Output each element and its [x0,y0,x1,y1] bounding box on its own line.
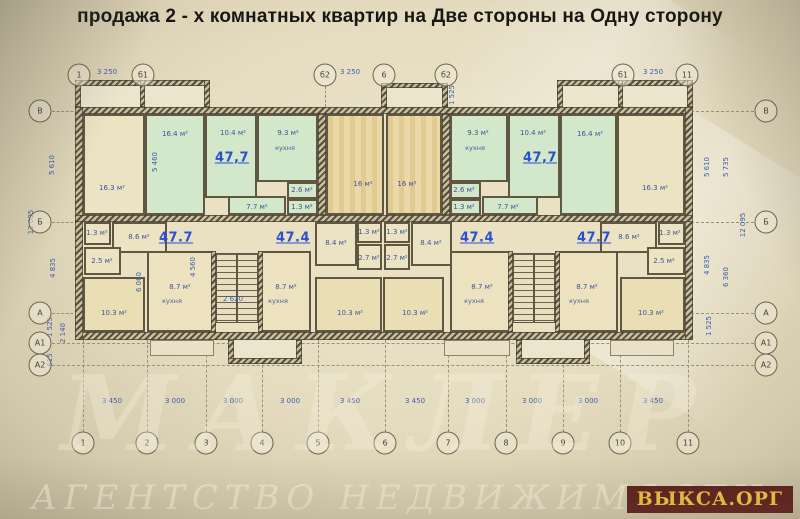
wall [555,251,560,332]
axis-circle: Б [755,211,778,234]
axis-line-vertical [325,86,326,107]
dimension-label: 5 610 [48,155,56,175]
wall [211,251,216,332]
dimension-label: 2 620 [223,295,243,303]
axis-circle: А1 [755,332,778,355]
dimension-label: 4 560 [189,257,197,277]
room [315,277,382,332]
dimension-label: 5 735 [722,157,730,177]
room-kitchen-label: кухня [162,297,182,305]
room-area-label: 2.5 м² [91,257,112,265]
axis-circle: 1 [68,64,91,87]
wall [508,251,513,332]
site-badge: ВЫКСА.ОРГ [627,486,793,513]
room-kitchen-label: кухня [569,297,589,305]
axis-circle: Б [29,211,52,234]
room-area-label: 10.3 м² [337,309,363,317]
axis-line-horizontal [691,313,754,314]
room-area-label: 8.7 м² [169,283,190,291]
room-area-label: 8.7 м² [275,283,296,291]
dimension-label: 5 460 [151,152,159,172]
apartment-area-label: 47.4 [276,231,310,246]
axis-line-horizontal [691,111,754,112]
room-area-label: 16.4 м² [162,130,188,138]
room-area-label: 9.3 м² [467,129,488,137]
dimension-label: 3 250 [643,68,663,76]
room [386,114,442,215]
room-area-label: 16.4 м² [577,130,603,138]
dimension-label: 1 525 [448,85,456,105]
room [558,251,618,332]
building-protrusion [563,86,687,107]
room-area-label: 16 м² [353,180,372,188]
room-area-label: 1.3 м² [291,203,312,211]
wall [75,332,693,340]
axis-circle: В [29,100,52,123]
room-area-label: 7.7 м² [497,203,518,211]
room-area-label: 16.3 м² [99,184,125,192]
room-area-label: 2.7 м² [386,254,407,262]
room-area-label: 8.4 м² [325,239,346,247]
room [620,277,685,332]
wall [258,251,263,332]
axis-circle: А2 [29,354,52,377]
room [450,251,512,332]
room-area-label: 9.3 м² [277,129,298,137]
apartment-area-label: 47,7 [523,151,557,166]
axis-circle: А1 [29,332,52,355]
room-area-label: 10.3 м² [638,309,664,317]
room-area-label: 10.4 м² [520,129,546,137]
dimension-label: 5 610 [703,157,711,177]
room [261,251,311,332]
room-area-label: 1.3 м² [659,229,680,237]
wall [685,107,693,340]
room-area-label: 1.3 м² [86,229,107,237]
room-area-label: 2.6 м² [453,186,474,194]
axis-circle: А [29,302,52,325]
axis-circle: б1 [132,64,155,87]
dimension-label: 2 140 [59,323,67,343]
dimension-label: 12 095 [739,213,747,238]
room-area-label: 16 м² [397,180,416,188]
room-area-label: 8.7 м² [471,283,492,291]
wall [442,114,450,215]
floor-plan-photo: продажа 2 - х комнатных квартир на Две с… [0,0,800,519]
room-area-label: 8.4 м² [420,239,441,247]
dimension-label: 3 250 [97,68,117,76]
apartment-area-label: 47.7 [159,231,193,246]
dimension-label: 3 250 [340,68,360,76]
room [147,251,215,332]
dimension-label: 6 360 [722,267,730,287]
room-kitchen-label: кухня [268,297,288,305]
axis-circle: б1 [612,64,635,87]
room-area-label: 16.3 м² [642,184,668,192]
room-area-label: 2.6 м² [291,186,312,194]
room-area-label: 10.3 м² [402,309,428,317]
room-area-label: 1.3 м² [386,228,407,236]
apartment-area-label: 47.4 [460,231,494,246]
dimension-label: 1 525 [705,316,713,336]
dimension-label: 6 060 [135,272,143,292]
axis-circle: 11 [676,64,699,87]
apartment-area-label: 47,7 [215,151,249,166]
room-area-label: 8.6 м² [618,233,639,241]
room-area-label: 1.3 м² [358,228,379,236]
wall [75,107,83,340]
room-area-label: 7.7 м² [246,203,267,211]
room-area-label: 2.5 м² [653,257,674,265]
room [383,277,444,332]
axis-circle: В [755,100,778,123]
wall [75,215,693,222]
room-kitchen-label: кухня [275,144,295,152]
room [617,114,685,215]
room-area-label: 10.4 м² [220,129,246,137]
dimension-label: 4 835 [49,258,57,278]
room [326,114,384,215]
axis-circle: б2 [435,64,458,87]
dimension-label: 4 835 [703,255,711,275]
axis-circle: 6 [373,64,396,87]
room-area-label: 2.7 м² [358,254,379,262]
axis-circle: А2 [755,354,778,377]
watermark-logo-script: МАКЛЕР [61,352,713,475]
room [83,114,145,215]
building-protrusion [387,88,442,107]
room-area-label: 1.3 м² [453,203,474,211]
room-kitchen-label: кухня [464,297,484,305]
room-area-label: 8.6 м² [128,233,149,241]
room-area-label: 10.3 м² [101,309,127,317]
wall [318,114,326,215]
room-kitchen-label: кухня [465,144,485,152]
axis-circle: б2 [314,64,337,87]
stairwell [216,253,258,323]
stairwell [513,253,555,323]
wall [204,80,210,107]
wall [75,107,693,114]
axis-circle: А [755,302,778,325]
room-area-label: 8.7 м² [576,283,597,291]
apartment-area-label: 47.7 [577,231,611,246]
